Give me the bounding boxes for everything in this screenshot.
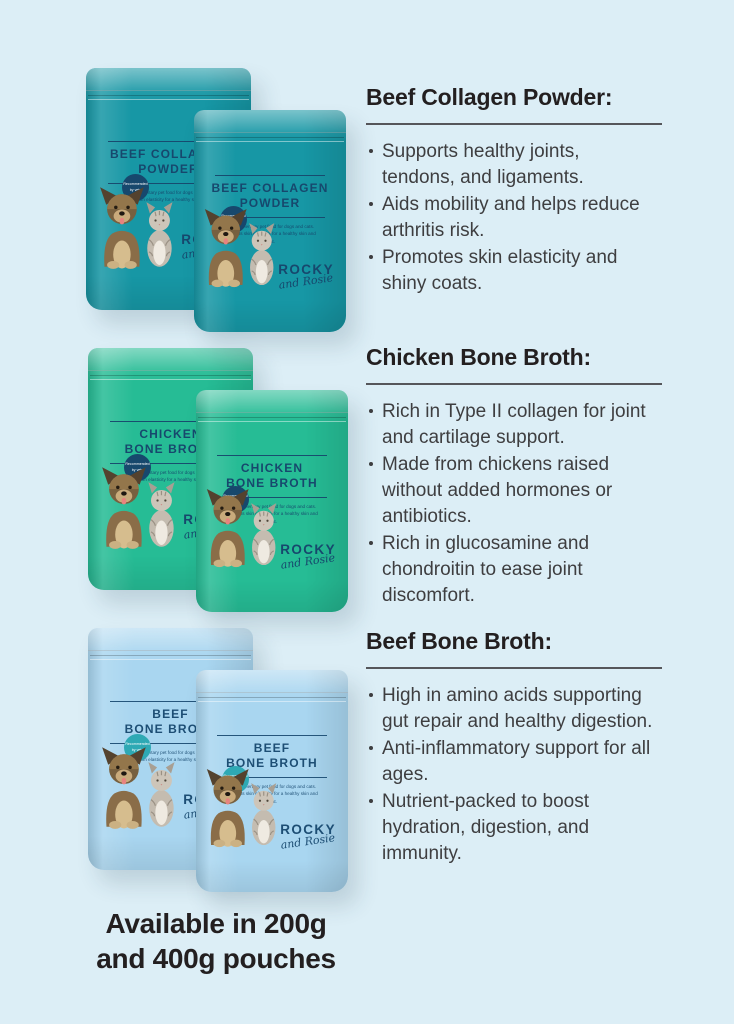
pouch-title-line1: CHICKEN	[210, 461, 335, 476]
pouch-zip-seal	[88, 95, 249, 100]
product-image-chicken-bone-broth: CHICKENBONE BROTH Complementary pet food…	[88, 348, 358, 618]
pouch-seal	[86, 68, 251, 91]
benefit-item: High in amino acids supporting gut repai…	[382, 683, 656, 735]
pouch-seal	[88, 348, 253, 371]
pouch-seal	[196, 670, 348, 693]
section-beef-collagen-powder: Beef Collagen Powder: Supports healthy j…	[366, 84, 662, 298]
dog-and-cat-photo	[96, 742, 192, 832]
pouch-zip-seal	[90, 655, 251, 660]
label-divider	[217, 455, 328, 456]
benefit-list: Supports healthy joints, tendons, and li…	[366, 139, 662, 297]
section-heading: Chicken Bone Broth:	[366, 344, 662, 371]
pouch-zip-seal	[90, 375, 251, 380]
pouch-small: BEEF COLLAGENPOWDER Complementary pet fo…	[194, 110, 346, 332]
section-chicken-bone-broth: Chicken Bone Broth: Rich in Type II coll…	[366, 344, 662, 610]
product-flyer: BEEF COLLAGENPOWDER Complementary pet fo…	[0, 0, 734, 1024]
pouch-seal	[194, 110, 346, 133]
caption-line: and 400g pouches	[72, 941, 360, 976]
product-image-beef-bone-broth: BEEFBONE BROTH Complementary pet food fo…	[88, 628, 358, 898]
caption-line: Available in 200g	[72, 906, 360, 941]
pouch-title-line1: BEEF COLLAGEN	[208, 181, 333, 196]
pouch-zip-seal	[196, 137, 344, 142]
heading-underline	[366, 123, 662, 125]
pouch-seal	[196, 390, 348, 413]
label-divider	[217, 735, 328, 736]
benefit-item: Promotes skin elasticity and shiny coats…	[382, 245, 656, 297]
dog-and-cat-photo	[199, 204, 291, 290]
benefit-item: Aids mobility and helps reduce arthritis…	[382, 192, 656, 244]
section-beef-bone-broth: Beef Bone Broth: High in amino acids sup…	[366, 628, 662, 868]
benefit-list: High in amino acids supporting gut repai…	[366, 683, 662, 867]
dog-and-cat-photo	[201, 764, 293, 850]
benefit-item: Rich in glucosamine and chondroitin to e…	[382, 531, 656, 609]
product-image-beef-collagen-powder: BEEF COLLAGENPOWDER Complementary pet fo…	[86, 68, 356, 338]
benefit-item: Supports healthy joints, tendons, and li…	[382, 139, 656, 191]
availability-caption: Available in 200g and 400g pouches	[72, 906, 360, 976]
benefit-item: Made from chickens raised without added …	[382, 452, 656, 530]
label-divider	[215, 175, 326, 176]
dog-and-cat-photo	[96, 462, 192, 552]
heading-underline	[366, 383, 662, 385]
benefit-list: Rich in Type II collagen for joint and c…	[366, 399, 662, 609]
pouch-small: BEEFBONE BROTH Complementary pet food fo…	[196, 670, 348, 892]
heading-underline	[366, 667, 662, 669]
benefit-item: Anti-inflammatory support for all ages.	[382, 736, 656, 788]
pouch-title-line1: BEEF	[210, 741, 335, 756]
dog-and-cat-photo	[201, 484, 293, 570]
pouch-seal	[88, 628, 253, 651]
pouch-zip-seal	[198, 697, 346, 702]
benefit-item: Nutrient-packed to boost hydration, dige…	[382, 789, 656, 867]
section-heading: Beef Collagen Powder:	[366, 84, 662, 111]
pouch-small: CHICKENBONE BROTH Complementary pet food…	[196, 390, 348, 612]
dog-and-cat-photo	[94, 182, 190, 272]
pouch-zip-seal	[198, 417, 346, 422]
benefit-item: Rich in Type II collagen for joint and c…	[382, 399, 656, 451]
section-heading: Beef Bone Broth:	[366, 628, 662, 655]
